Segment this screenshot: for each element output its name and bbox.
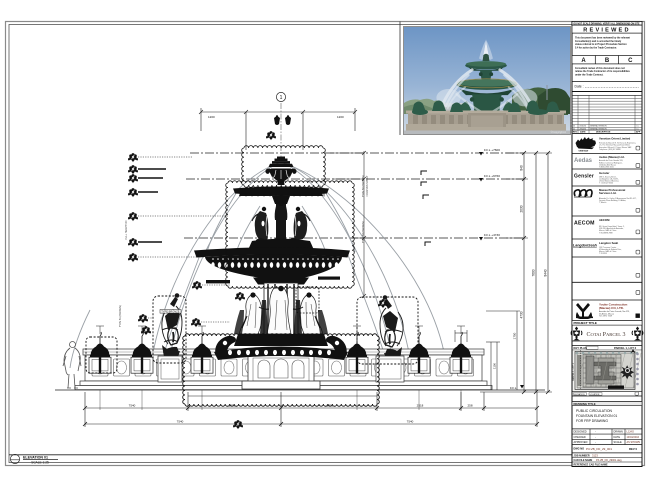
svg-text:P3-VB_FD_29001.dwg: P3-VB_FD_29001.dwg — [596, 459, 622, 462]
svg-text:Date :: Date : — [575, 85, 584, 89]
svg-text:GENERAL REVISION: GENERAL REVISION — [590, 127, 607, 130]
svg-text:SCALE: SCALE — [614, 441, 623, 444]
svg-text:APP: APP — [636, 131, 641, 134]
svg-text:KEY PLAN: KEY PLAN — [574, 346, 588, 350]
svg-text:DRAWN: DRAWN — [614, 431, 624, 434]
svg-text:05/05/16: 05/05/16 — [580, 125, 587, 127]
svg-text:REFERENCE CAD FILE NAME: REFERENCE CAD FILE NAME — [574, 464, 609, 467]
svg-text:02: 02 — [573, 128, 575, 130]
svg-text:7540: 7540 — [407, 420, 414, 424]
svg-text:F.F.L +6760: F.F.L +6760 — [484, 174, 500, 178]
svg-text:REV 0: REV 0 — [629, 447, 638, 451]
svg-text:TYPE B1 (BRONZE): TYPE B1 (BRONZE) — [119, 305, 122, 327]
svg-text:This document has been reviewe: This document has been reviewed by the r… — [575, 37, 630, 40]
svg-text:1200: 1200 — [208, 115, 215, 119]
svg-text:VENETIAN: VENETIAN — [579, 151, 589, 153]
svg-text:5.4 for action by the Trade Co: 5.4 for action by the Trade Contractor. — [575, 47, 617, 50]
svg-text:T (853) 2833 1055: T (853) 2833 1055 — [599, 167, 614, 169]
svg-text:F.F.L +4730: F.F.L +4730 — [484, 233, 500, 237]
svg-text:Aedas: Aedas — [574, 158, 593, 164]
svg-text:Services Ltd.: Services Ltd. — [599, 191, 617, 195]
svg-text:1750: 1750 — [513, 332, 517, 339]
svg-text:2030: 2030 — [520, 205, 524, 212]
svg-text:CHECKED: CHECKED — [574, 436, 586, 439]
svg-text:T 1 213.627.3500: T 1 213.627.3500 — [599, 183, 613, 185]
svg-text:258: 258 — [467, 404, 472, 408]
svg-text:PARCEL 1, LOT 1: PARCEL 1, LOT 1 — [572, 362, 575, 380]
svg-text:T, Macau: T, Macau — [599, 202, 606, 204]
svg-text:2518: 2518 — [229, 404, 236, 408]
svg-text:T 853.8898.7888: T 853.8898.7888 — [599, 232, 613, 234]
svg-text:JOB NUMBER: JOB NUMBER — [574, 455, 590, 458]
svg-text:7600: 7600 — [532, 269, 536, 276]
svg-text:B: B — [605, 58, 610, 64]
svg-text:10/04/2016: 10/04/2016 — [627, 436, 640, 439]
svg-text:8440: 8440 — [544, 269, 548, 276]
svg-text:LOCATION: LOCATION — [590, 393, 600, 396]
svg-text:AECOM: AECOM — [599, 218, 610, 222]
svg-text:A: A — [581, 58, 586, 64]
svg-text:TYPE BRONZE: TYPE BRONZE — [161, 309, 180, 313]
svg-text:2518: 2518 — [327, 404, 334, 408]
svg-text:(Macau) CO, LTD.: (Macau) CO, LTD. — [599, 306, 624, 310]
svg-text:7540: 7540 — [177, 420, 184, 424]
svg-text:PUBLIC CIRCULATION: PUBLIC CIRCULATION — [576, 409, 612, 413]
svg-text:4730: 4730 — [520, 311, 524, 318]
svg-text:DRAWING TITLE: DRAWING TITLE — [574, 402, 596, 406]
svg-text:DESCRIPTION: DESCRIPTION — [596, 132, 611, 134]
svg-text:1100: 1100 — [493, 363, 497, 369]
svg-text:Aedas (Macau) Ltd.: Aedas (Macau) Ltd. — [599, 155, 625, 159]
svg-text:AS SHOWN: AS SHOWN — [627, 441, 641, 444]
svg-text:DWG NO: DWG NO — [574, 448, 585, 451]
svg-text:FOUNTAIN ELEVATION 01: FOUNTAIN ELEVATION 01 — [576, 414, 617, 418]
svg-text:FULL HEIGHT OF: FULL HEIGHT OF — [125, 220, 128, 240]
svg-text:Consultant review of this docu: Consultant review of this document does … — [575, 67, 625, 70]
svg-text:Gensler: Gensler — [574, 174, 594, 180]
svg-text:under the Trade Contract.: under the Trade Contract. — [575, 73, 604, 76]
svg-text:LC/AO: LC/AO — [627, 431, 635, 434]
svg-text:GENERAL REVISION: GENERAL REVISION — [590, 124, 607, 127]
svg-text:DATE: DATE — [614, 436, 621, 439]
svg-text:status referred to in Project: status referred to in Project Procedure … — [575, 43, 627, 46]
svg-text:LangdonSeah: LangdonSeah — [573, 244, 598, 248]
svg-text:©Copyright.A: ©Copyright.A — [551, 130, 567, 134]
svg-text:7540: 7540 — [129, 404, 136, 408]
svg-text:Telephone: (853) 81 18888: Telephone: (853) 81 18888 — [599, 149, 620, 151]
svg-text:relieve the Trade Contractor o: relieve the Trade Contractor of its resp… — [575, 70, 631, 73]
svg-text:ELEVATION 01: ELEVATION 01 — [23, 455, 48, 459]
svg-text:Gensler: Gensler — [599, 171, 610, 175]
svg-text:REV: REV — [573, 132, 578, 134]
svg-text:3123: 3123 — [592, 454, 598, 458]
svg-text:ELEVATION: ELEVATION — [574, 393, 585, 396]
svg-text:Langdon Seah: Langdon Seah — [599, 241, 619, 245]
svg-text:Venetian Orient Limited: Venetian Orient Limited — [599, 137, 631, 141]
svg-text:TYPE B3 (BRONZE): TYPE B3 (BRONZE) — [362, 221, 365, 243]
svg-text:1: 1 — [280, 95, 283, 101]
svg-text:2518: 2518 — [417, 404, 424, 408]
svg-text:DATE: DATE — [580, 131, 586, 134]
svg-text:03: 03 — [573, 125, 575, 127]
svg-text:28/04/16: 28/04/16 — [580, 128, 587, 130]
svg-text:T 28 3355: T 28 3355 — [599, 253, 607, 255]
svg-text:APPROVED: APPROVED — [574, 441, 588, 444]
svg-text:FOR FRP DRAWING: FOR FRP DRAWING — [576, 419, 608, 423]
svg-text:SCALE 1:25: SCALE 1:25 — [31, 461, 49, 465]
svg-text:840: 840 — [520, 165, 524, 171]
svg-text:DESIGNED: DESIGNED — [574, 431, 587, 434]
svg-text:P3-VB_FD_29_001: P3-VB_FD_29_001 — [586, 447, 612, 451]
svg-text:FOUNTAIN SPOUT: FOUNTAIN SPOUT — [366, 175, 369, 196]
svg-text:PROJECT TITLE: PROJECT TITLE — [574, 321, 597, 325]
svg-text:CAD FILE NAME: CAD FILE NAME — [574, 459, 593, 462]
svg-text:AECOM: AECOM — [574, 221, 595, 227]
svg-text:F.F.L +7600: F.F.L +7600 — [484, 148, 500, 152]
svg-text:C: C — [628, 58, 633, 64]
svg-text:F.F.L: F.F.L — [510, 386, 517, 390]
svg-text:1200: 1200 — [337, 115, 344, 119]
svg-text:Tel: 2871 7229: Tel: 2871 7229 — [599, 316, 613, 318]
svg-text:TYPE B2 (BRONZE): TYPE B2 (BRONZE) — [362, 175, 365, 197]
svg-text:REVIEWED: REVIEWED — [583, 27, 630, 33]
svg-text:Consultants(s) and is accorded: Consultants(s) and is accorded the timel… — [575, 40, 622, 43]
